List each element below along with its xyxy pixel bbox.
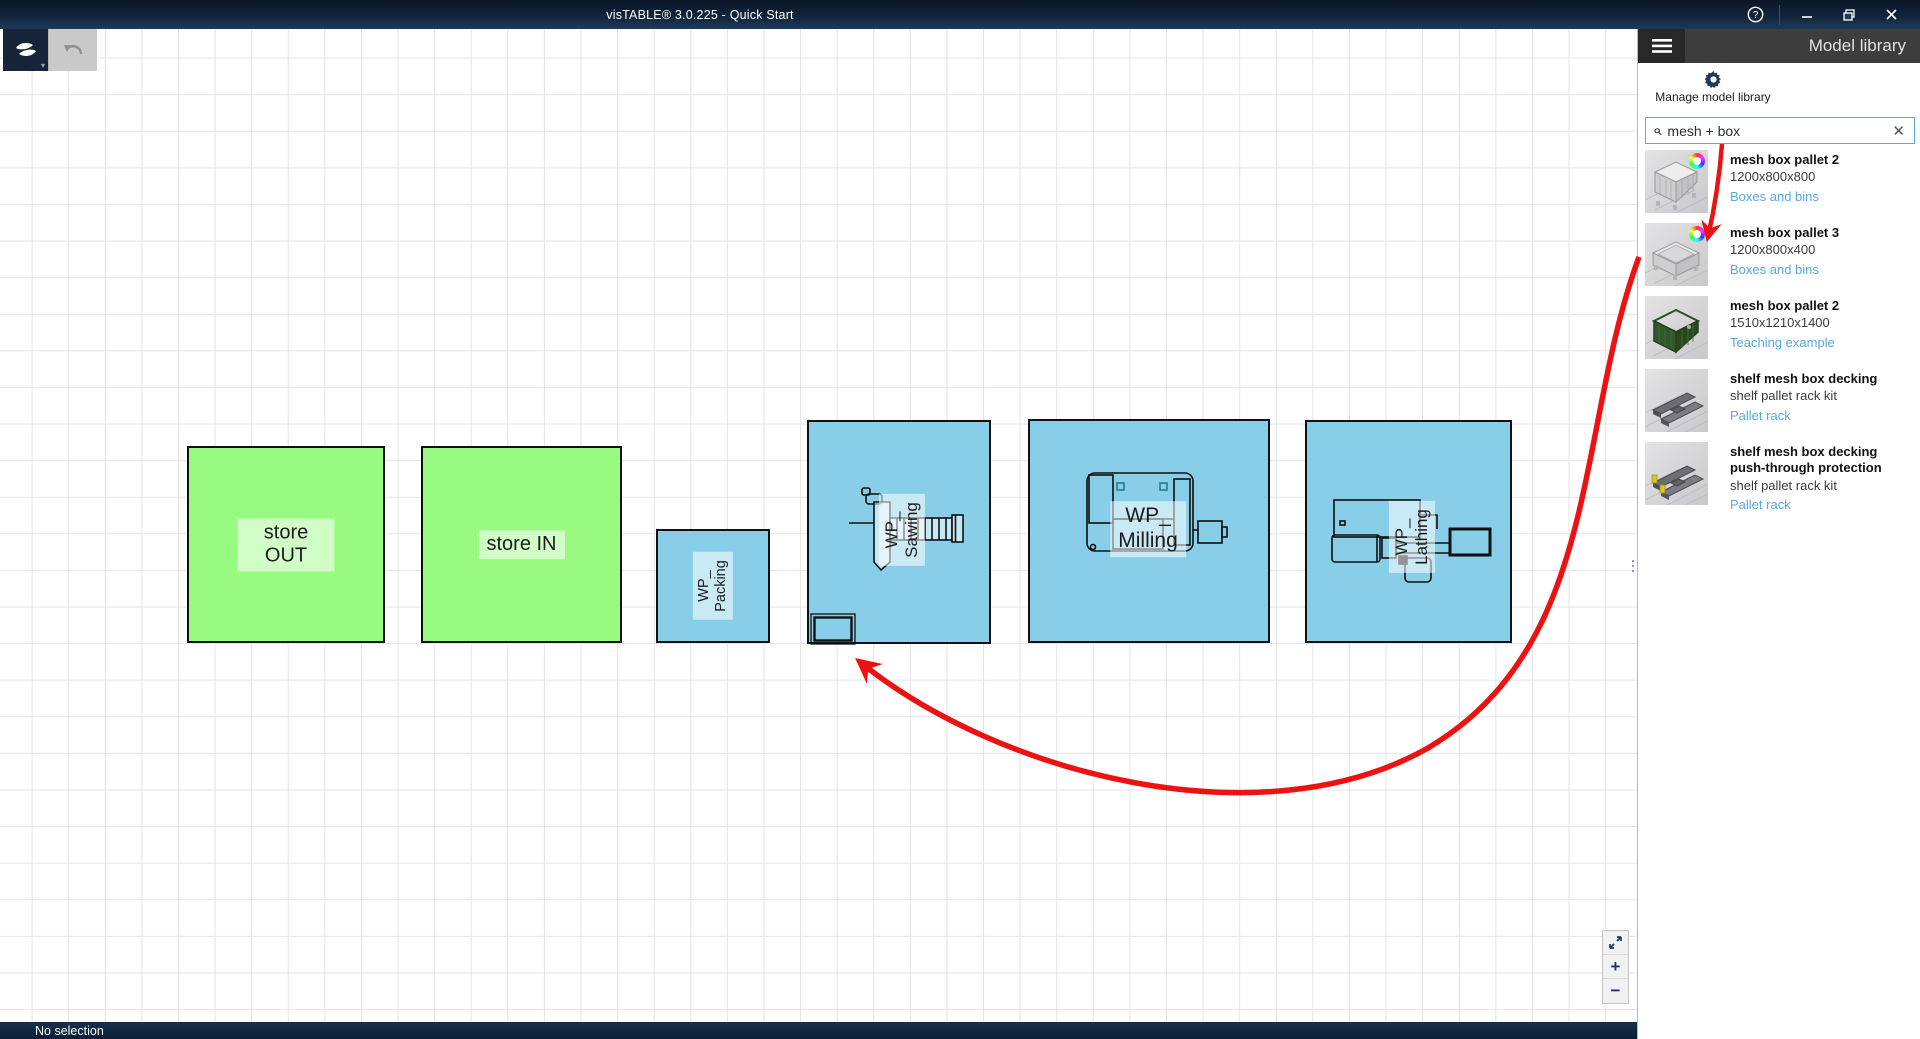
fit-view-icon bbox=[1608, 935, 1623, 950]
model-dimensions: 1510x1210x1400 bbox=[1730, 315, 1908, 332]
area-store-in[interactable]: store IN bbox=[421, 446, 622, 643]
gear-icon bbox=[1705, 71, 1722, 88]
manage-model-library-button[interactable]: Manage model library bbox=[1648, 69, 1778, 106]
minimize-icon bbox=[1802, 10, 1813, 20]
model-title: mesh box pallet 2 bbox=[1730, 298, 1908, 314]
titlebar: visTABLE® 3.0.225 - Quick Start ? bbox=[0, 0, 1920, 29]
close-icon bbox=[1886, 9, 1897, 20]
minimize-button[interactable] bbox=[1786, 0, 1828, 29]
zoom-out-button[interactable]: − bbox=[1603, 979, 1628, 1003]
close-button[interactable] bbox=[1870, 0, 1912, 29]
hamburger-icon bbox=[1652, 39, 1672, 53]
layout-canvas[interactable]: ▾ store OUT store IN WP_ Packing bbox=[0, 29, 1637, 1022]
statusbar: No selection bbox=[0, 1022, 1637, 1039]
panel-title: Model library bbox=[1685, 36, 1920, 56]
model-library-panel: Model library Manage model library ⌕ ✕ bbox=[1637, 29, 1920, 1039]
area-label: store OUT bbox=[238, 518, 335, 571]
area-label: WP_ Lathing bbox=[1389, 501, 1435, 573]
model-category-link[interactable]: Pallet rack bbox=[1730, 497, 1908, 514]
hamburger-menu-button[interactable] bbox=[1638, 29, 1685, 63]
area-wp-packing[interactable]: WP_ Packing bbox=[656, 529, 770, 643]
colorwheel-badge-icon bbox=[1689, 153, 1705, 169]
model-library-header: Model library bbox=[1638, 29, 1920, 63]
model-category-link[interactable]: Teaching example bbox=[1730, 335, 1908, 352]
menu-caret-icon: ▾ bbox=[41, 61, 45, 70]
model-title: shelf mesh box decking push-through prot… bbox=[1730, 444, 1908, 477]
model-title: shelf mesh box decking bbox=[1730, 371, 1908, 387]
titlebar-divider bbox=[1779, 5, 1780, 25]
window-title: visTABLE® 3.0.225 - Quick Start bbox=[606, 8, 793, 22]
list-item-mesh-box-pallet-3[interactable]: mesh box pallet 3 1200x800x400 Boxes and… bbox=[1645, 223, 1917, 286]
restore-button[interactable] bbox=[1828, 0, 1870, 29]
shelf-decking-thumb-icon bbox=[1645, 369, 1708, 432]
zoom-controls: + − bbox=[1602, 930, 1629, 1004]
undo-icon bbox=[61, 39, 85, 61]
list-item-shelf-decking-protection[interactable]: shelf mesh box decking push-through prot… bbox=[1645, 442, 1917, 514]
model-category-link[interactable]: Boxes and bins bbox=[1730, 189, 1908, 206]
model-thumbnail bbox=[1645, 223, 1708, 286]
model-title: mesh box pallet 2 bbox=[1730, 152, 1908, 168]
svg-text:?: ? bbox=[1752, 10, 1758, 21]
search-input[interactable] bbox=[1667, 123, 1890, 139]
undo-button[interactable] bbox=[48, 29, 97, 71]
sidebar-splitter-handle[interactable] bbox=[1632, 560, 1635, 572]
help-icon: ? bbox=[1747, 6, 1764, 23]
model-category-link[interactable]: Pallet rack bbox=[1730, 408, 1908, 425]
fit-view-button[interactable] bbox=[1603, 931, 1628, 955]
help-button[interactable]: ? bbox=[1737, 0, 1773, 29]
model-kit: shelf pallet rack kit bbox=[1730, 388, 1908, 405]
list-item-mesh-box-pallet-2[interactable]: mesh box pallet 2 1200x800x800 Boxes and… bbox=[1645, 150, 1917, 213]
area-wp-milling[interactable]: WP_ Milling bbox=[1028, 419, 1270, 643]
model-dimensions: 1200x800x400 bbox=[1730, 242, 1908, 259]
search-box: ⌕ ✕ bbox=[1645, 117, 1915, 144]
area-label: WP_ Packing bbox=[693, 552, 733, 620]
area-wp-lathing[interactable]: WP_ Lathing bbox=[1305, 420, 1512, 643]
manage-label: Manage model library bbox=[1655, 90, 1770, 104]
vistable-logo-icon bbox=[11, 38, 41, 62]
area-label: store IN bbox=[478, 530, 564, 560]
model-category-link[interactable]: Boxes and bins bbox=[1730, 262, 1908, 279]
model-thumbnail bbox=[1645, 369, 1708, 432]
shelf-decking-protection-thumb-icon bbox=[1645, 442, 1708, 505]
area-label: WP_ Milling bbox=[1110, 501, 1186, 557]
model-title: mesh box pallet 3 bbox=[1730, 225, 1908, 241]
model-thumbnail bbox=[1645, 442, 1708, 505]
selection-status: No selection bbox=[35, 1024, 104, 1038]
area-wp-sawing[interactable]: WP_ Sawing bbox=[807, 420, 991, 644]
restore-icon bbox=[1843, 9, 1855, 21]
list-item-shelf-decking[interactable]: shelf mesh box decking shelf pallet rack… bbox=[1645, 369, 1917, 432]
colorwheel-badge-icon bbox=[1689, 226, 1705, 242]
model-thumbnail bbox=[1645, 150, 1708, 213]
zoom-in-button[interactable]: + bbox=[1603, 955, 1628, 979]
model-thumbnail bbox=[1645, 296, 1708, 359]
model-result-list: mesh box pallet 2 1200x800x800 Boxes and… bbox=[1645, 150, 1917, 514]
search-icon: ⌕ bbox=[1653, 122, 1661, 139]
list-item-mesh-box-green[interactable]: mesh box pallet 2 1510x1210x1400 Teachin… bbox=[1645, 296, 1917, 359]
model-kit: shelf pallet rack kit bbox=[1730, 478, 1908, 495]
area-label: WP_ Sawing bbox=[879, 494, 925, 566]
area-store-out[interactable]: store OUT bbox=[187, 446, 385, 643]
green-mesh-box-thumb-icon bbox=[1645, 296, 1708, 359]
app-menu-button[interactable]: ▾ bbox=[3, 29, 48, 71]
model-dimensions: 1200x800x800 bbox=[1730, 169, 1908, 186]
clear-search-icon[interactable]: ✕ bbox=[1890, 122, 1907, 140]
